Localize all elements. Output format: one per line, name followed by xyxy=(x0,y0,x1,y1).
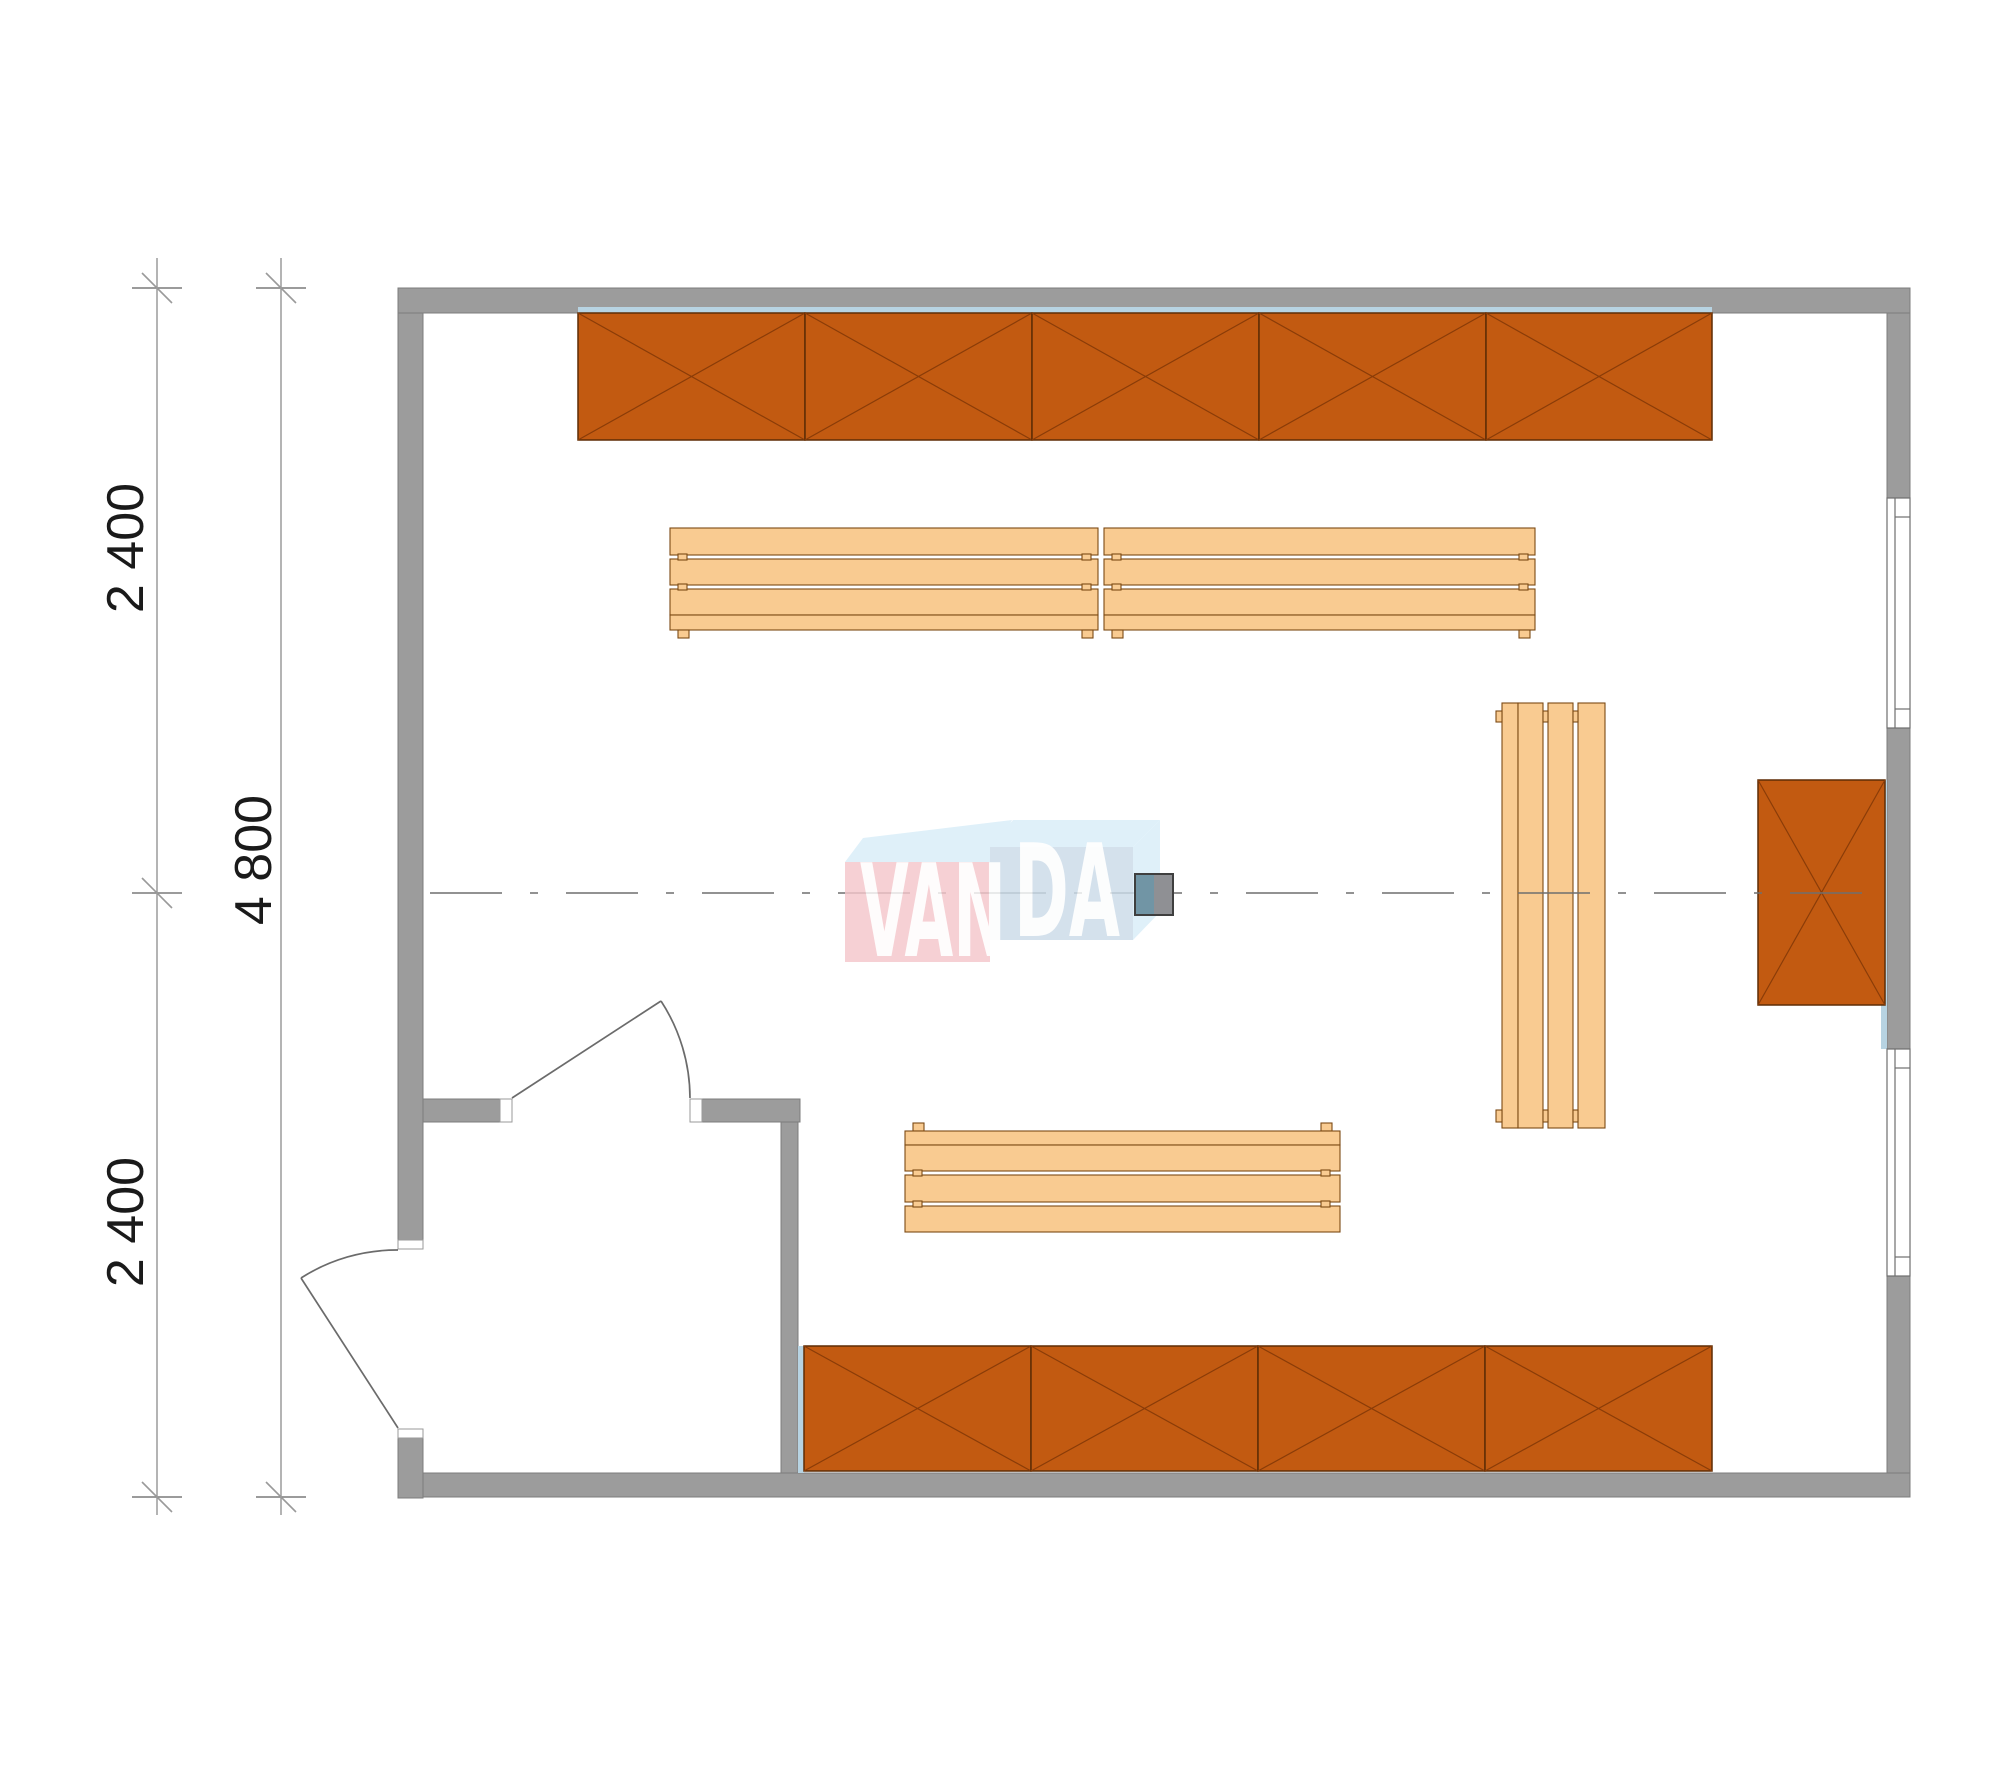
wall-right-lower xyxy=(1887,1276,1910,1473)
counter-segment xyxy=(1485,1346,1712,1471)
wall-right-upper xyxy=(1887,313,1910,498)
counter-segment xyxy=(1259,313,1486,440)
bench xyxy=(905,1123,1340,1232)
wall-bottom xyxy=(423,1473,1910,1497)
watermark-text-da: DA xyxy=(1014,818,1120,967)
jamb xyxy=(398,1240,423,1249)
floor-plan-page: 2 400 4 800 2 400 xyxy=(0,0,2000,1786)
counter-segment xyxy=(1032,313,1259,440)
counter-segment xyxy=(805,313,1032,440)
jamb xyxy=(398,1429,423,1438)
window xyxy=(1887,1049,1910,1276)
counter-segment xyxy=(578,313,805,440)
wall-stripes xyxy=(578,307,1887,1473)
center-marker xyxy=(1135,874,1173,915)
bench xyxy=(1104,528,1535,638)
wall-right-middle xyxy=(1887,728,1910,1049)
wall-left-lower xyxy=(398,1438,423,1498)
door-swing-exterior xyxy=(301,1250,398,1428)
counter-segment xyxy=(1486,313,1712,440)
jamb xyxy=(690,1099,702,1122)
bench xyxy=(670,528,1098,638)
wall-left-upper xyxy=(398,313,423,1240)
dimension-label-overall: 4 800 xyxy=(225,795,283,925)
stripe-top xyxy=(578,307,1712,313)
dimension-label-bottom: 2 400 xyxy=(97,1157,155,1287)
counter-segment xyxy=(1258,1346,1485,1471)
dimension-lines: 2 400 4 800 2 400 xyxy=(97,258,306,1515)
window xyxy=(1887,498,1910,728)
marker-left-half xyxy=(1136,875,1154,914)
floor-plan-drawing: 2 400 4 800 2 400 xyxy=(0,0,2000,1786)
doors xyxy=(301,1001,690,1428)
counter-segment xyxy=(1031,1346,1258,1471)
stripe-bottom-left xyxy=(798,1346,804,1473)
bench xyxy=(1496,703,1605,1128)
counter-segment xyxy=(804,1346,1031,1471)
door-jambs xyxy=(398,1099,702,1438)
crossed-counters xyxy=(578,313,1885,1471)
wall-partition-right xyxy=(702,1099,800,1122)
wall-partition-vertical xyxy=(781,1122,798,1473)
jamb xyxy=(500,1099,512,1122)
wall-partition-left xyxy=(423,1099,500,1122)
watermark-text-van: VAN xyxy=(860,838,1006,987)
vanda-watermark: VAN DA xyxy=(845,818,1160,987)
dimension-label-top: 2 400 xyxy=(97,483,155,613)
door-swing-interior xyxy=(512,1001,690,1098)
